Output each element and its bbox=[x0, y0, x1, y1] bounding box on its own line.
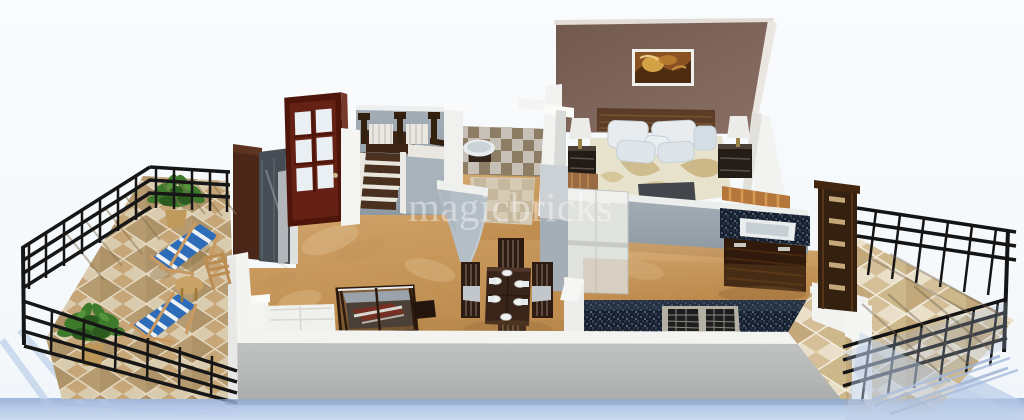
svg-text:magicbricks: magicbricks bbox=[408, 184, 613, 230]
